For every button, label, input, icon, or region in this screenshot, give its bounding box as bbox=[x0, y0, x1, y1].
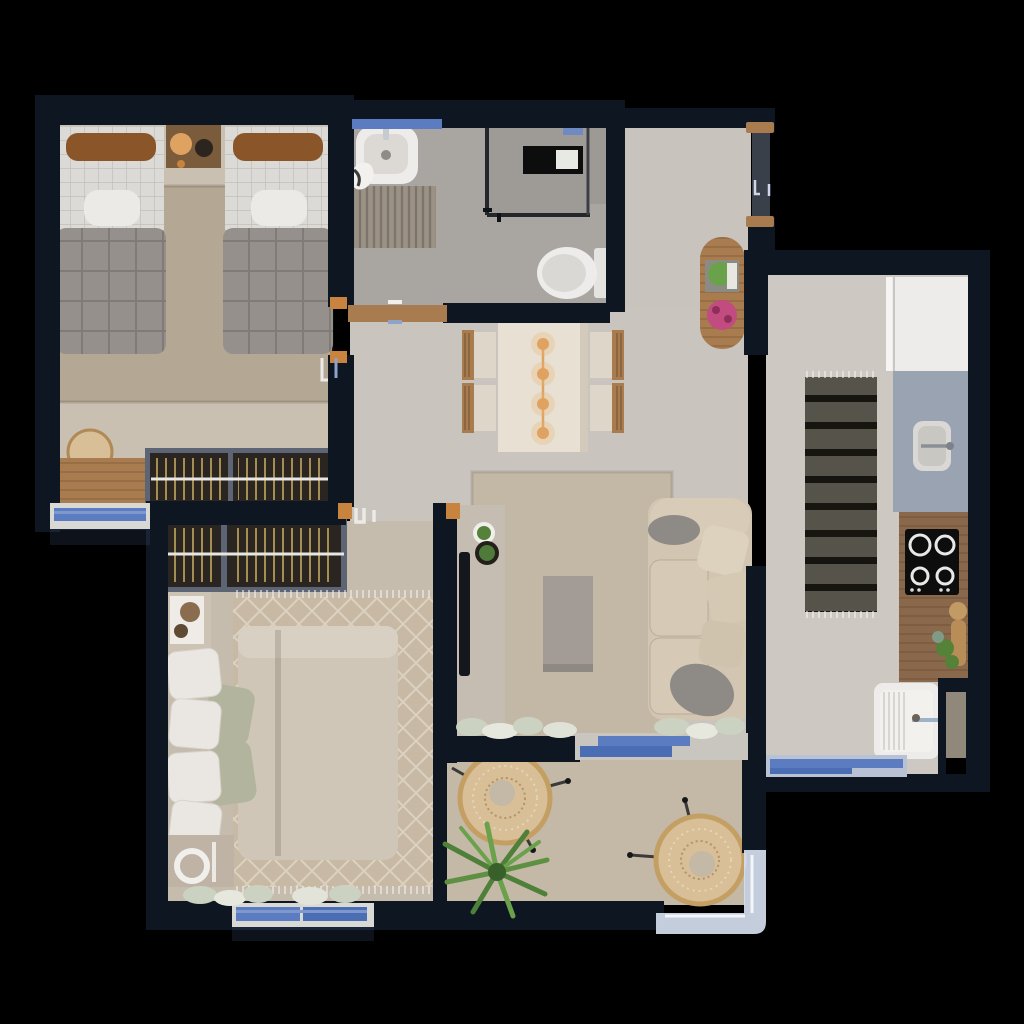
window-glow bbox=[50, 529, 150, 545]
coffee-table bbox=[543, 576, 593, 672]
toilet-seat bbox=[542, 254, 586, 292]
laundry-window bbox=[766, 755, 907, 777]
plant-box-books bbox=[727, 263, 737, 289]
fridge-door-edge bbox=[886, 277, 892, 371]
entry-door-panel bbox=[752, 132, 770, 218]
faucet-base bbox=[946, 442, 954, 450]
entry-door-cap bbox=[746, 122, 774, 133]
master-window bbox=[232, 903, 374, 941]
pendant-bulb bbox=[537, 427, 549, 439]
desk-clock bbox=[195, 139, 213, 157]
wall bbox=[35, 95, 60, 532]
door-glass bbox=[580, 746, 672, 757]
bathroom-window bbox=[352, 119, 442, 129]
shower-shelf-box bbox=[556, 150, 578, 169]
wall bbox=[752, 250, 990, 275]
curtain-puff bbox=[214, 890, 246, 906]
twin-bed-right bbox=[223, 126, 333, 354]
rug-fringe-top bbox=[233, 590, 443, 598]
bedroom1-window bbox=[50, 503, 150, 545]
curtain-puff bbox=[183, 886, 217, 904]
bed-folded-blanket bbox=[84, 190, 140, 226]
curtain-puff bbox=[243, 885, 273, 903]
chair-center-hole bbox=[489, 780, 515, 806]
dining-chair bbox=[590, 330, 624, 380]
wall bbox=[443, 303, 610, 323]
runner-stripes bbox=[805, 377, 877, 612]
leg-tip bbox=[682, 797, 688, 803]
dining-chair bbox=[462, 383, 496, 433]
chair-back bbox=[462, 330, 474, 380]
dining-chair bbox=[590, 383, 624, 433]
entry-door-cap bbox=[746, 216, 774, 227]
wall bbox=[35, 95, 345, 125]
wall bbox=[146, 501, 346, 525]
window-glass bbox=[770, 768, 852, 774]
round-board bbox=[949, 602, 967, 620]
curtain-puff bbox=[292, 887, 328, 905]
door-frame-post bbox=[446, 503, 460, 519]
wall bbox=[742, 753, 766, 853]
sofa-pillow bbox=[697, 619, 747, 669]
pendant-bulb bbox=[537, 368, 549, 380]
curtain-puff bbox=[513, 717, 543, 735]
cooktop-knob bbox=[917, 588, 921, 592]
lamp-switch bbox=[177, 160, 185, 168]
fridge-door-gap bbox=[893, 277, 895, 371]
window-glass bbox=[770, 759, 903, 768]
window-glow bbox=[232, 927, 374, 941]
wall bbox=[433, 503, 457, 763]
wall bbox=[966, 678, 990, 778]
plant-center bbox=[488, 863, 506, 881]
sliding-door bbox=[575, 733, 748, 760]
sink-countertop bbox=[893, 371, 970, 512]
cooktop-knob bbox=[910, 588, 914, 592]
wall bbox=[328, 355, 354, 507]
sofa-seat-cushion bbox=[650, 560, 708, 636]
white-pillow bbox=[166, 647, 223, 700]
pendant-bulb bbox=[537, 338, 549, 350]
table-edge-shadow bbox=[580, 320, 588, 452]
wall bbox=[746, 566, 766, 760]
shower-glass-shelf bbox=[563, 128, 583, 135]
entry-hall bbox=[700, 237, 745, 349]
bed-duvet bbox=[238, 626, 398, 860]
service-niche-floor bbox=[946, 690, 968, 758]
stool-plant bbox=[479, 545, 495, 561]
wall bbox=[938, 678, 946, 778]
curtain-puff bbox=[715, 717, 745, 735]
toilet bbox=[537, 247, 614, 299]
master-wardrobe bbox=[161, 518, 347, 592]
curtain-puff bbox=[329, 885, 361, 903]
pink-flowers bbox=[707, 300, 737, 330]
door-frame-post bbox=[330, 297, 347, 309]
vanity-bowl bbox=[180, 602, 200, 622]
door-threshold bbox=[348, 305, 447, 322]
window-glass bbox=[236, 907, 300, 921]
door-glass bbox=[598, 736, 690, 746]
white-pillow bbox=[166, 750, 221, 804]
refrigerator bbox=[886, 277, 968, 371]
flower-detail bbox=[724, 315, 732, 323]
wall bbox=[438, 901, 664, 930]
curtain-puff bbox=[543, 722, 577, 738]
chair-center-hole bbox=[689, 851, 715, 877]
window-glass bbox=[54, 508, 146, 521]
tv bbox=[459, 552, 470, 676]
leg-tip bbox=[627, 852, 633, 858]
bath-mat-stripes bbox=[352, 186, 436, 248]
door-handle bbox=[388, 320, 402, 324]
cooktop-knob bbox=[939, 588, 943, 592]
sofa bbox=[648, 498, 760, 726]
basin-drain bbox=[381, 150, 391, 160]
chair-seat bbox=[472, 332, 496, 378]
console-grain bbox=[700, 237, 745, 349]
cooktop-knob bbox=[946, 588, 950, 592]
runner-fringe bbox=[805, 611, 877, 618]
laundry-drain bbox=[912, 714, 920, 722]
bed-pillow bbox=[66, 133, 156, 161]
fridge-body bbox=[890, 277, 968, 371]
curtain-puff bbox=[686, 723, 718, 739]
pendant-bulb bbox=[537, 398, 549, 410]
dining-chair bbox=[462, 330, 496, 380]
wall bbox=[968, 255, 990, 692]
vanity-bowl-small bbox=[174, 624, 188, 638]
cooktop bbox=[905, 529, 959, 595]
flower-detail bbox=[712, 306, 720, 314]
glass-highlight bbox=[236, 910, 367, 913]
shower-side-niche bbox=[590, 126, 608, 204]
door-frame-post bbox=[330, 351, 347, 363]
potted-plant bbox=[477, 526, 491, 540]
coffee-table-shadow bbox=[543, 664, 593, 672]
leg-tip bbox=[565, 778, 571, 784]
door-handle bbox=[388, 300, 402, 304]
wall bbox=[328, 95, 354, 307]
laundry-sink bbox=[874, 683, 940, 759]
curtain-puff bbox=[482, 723, 518, 739]
bedroom1-wardrobe bbox=[145, 448, 334, 510]
wall bbox=[744, 250, 768, 355]
bed-duvet-quilting bbox=[56, 228, 166, 354]
door-frame-post bbox=[338, 503, 352, 519]
twin-bed-left bbox=[56, 126, 166, 354]
curtain-puff bbox=[654, 718, 690, 736]
table-lamp bbox=[170, 133, 192, 155]
wall bbox=[606, 100, 625, 312]
vanity-desk bbox=[161, 592, 211, 652]
wall bbox=[443, 736, 580, 762]
white-pillow bbox=[168, 698, 222, 750]
shower-door-handle bbox=[483, 208, 492, 212]
shower-door-handle bbox=[497, 213, 501, 222]
window-glass bbox=[303, 907, 367, 921]
glass-highlight bbox=[54, 511, 146, 514]
tv-wall bbox=[455, 505, 505, 725]
floor-plan-svg bbox=[0, 0, 1024, 1024]
herbs bbox=[945, 655, 959, 669]
floor-plan-image bbox=[0, 0, 1024, 1024]
double-bed bbox=[166, 626, 398, 860]
wall bbox=[146, 503, 168, 930]
bed-top-fold bbox=[238, 626, 398, 658]
sofa-gray-pillow bbox=[648, 515, 700, 545]
wood-countertop bbox=[899, 512, 970, 682]
runner-fringe bbox=[805, 371, 877, 378]
herbs-light bbox=[932, 631, 944, 643]
